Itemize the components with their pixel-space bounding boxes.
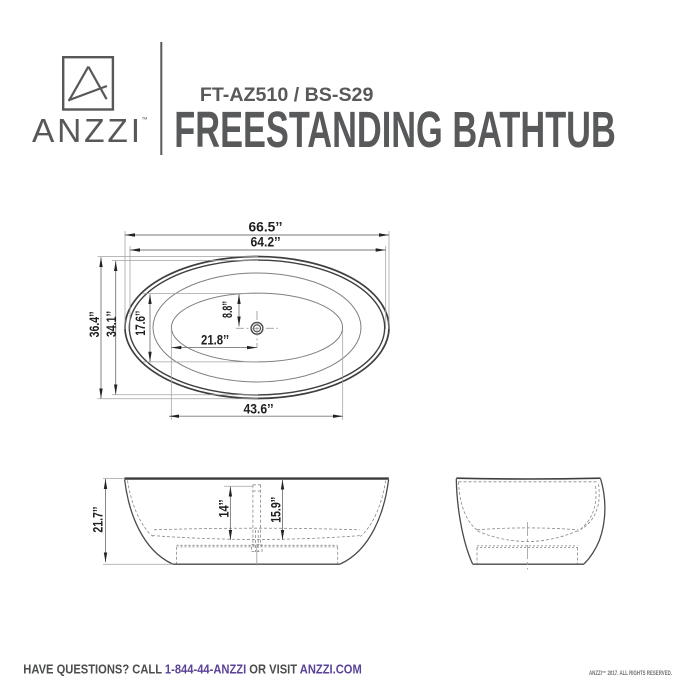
svg-text:36.4’’: 36.4’’ xyxy=(86,311,102,337)
svg-text:21.7’’: 21.7’’ xyxy=(90,507,106,533)
svg-text:HAVE QUESTIONS? CALL 1-844-44-: HAVE QUESTIONS? CALL 1-844-44-ANZZI OR V… xyxy=(23,662,362,676)
svg-text:66.5’’: 66.5’’ xyxy=(249,219,283,235)
svg-text:17.6’’: 17.6’’ xyxy=(132,311,148,336)
svg-text:15.9’’: 15.9’’ xyxy=(268,497,284,523)
svg-text:14’’: 14’’ xyxy=(216,500,232,518)
svg-text:ANZZI: ANZZI xyxy=(32,113,140,150)
svg-text:8.8’’: 8.8’’ xyxy=(219,301,235,318)
svg-text:™: ™ xyxy=(142,117,148,124)
svg-text:34.1’’: 34.1’’ xyxy=(103,311,119,337)
svg-text:64.2’’: 64.2’’ xyxy=(251,234,281,250)
svg-text:43.6’’: 43.6’’ xyxy=(244,400,274,416)
svg-text:21.8’’: 21.8’’ xyxy=(201,332,229,348)
svg-text:FREESTANDING BATHTUB: FREESTANDING BATHTUB xyxy=(174,101,616,158)
svg-text:ANZZI™ 2017. ALL RIGHTS RESERV: ANZZI™ 2017. ALL RIGHTS RESERVED. xyxy=(589,670,672,677)
